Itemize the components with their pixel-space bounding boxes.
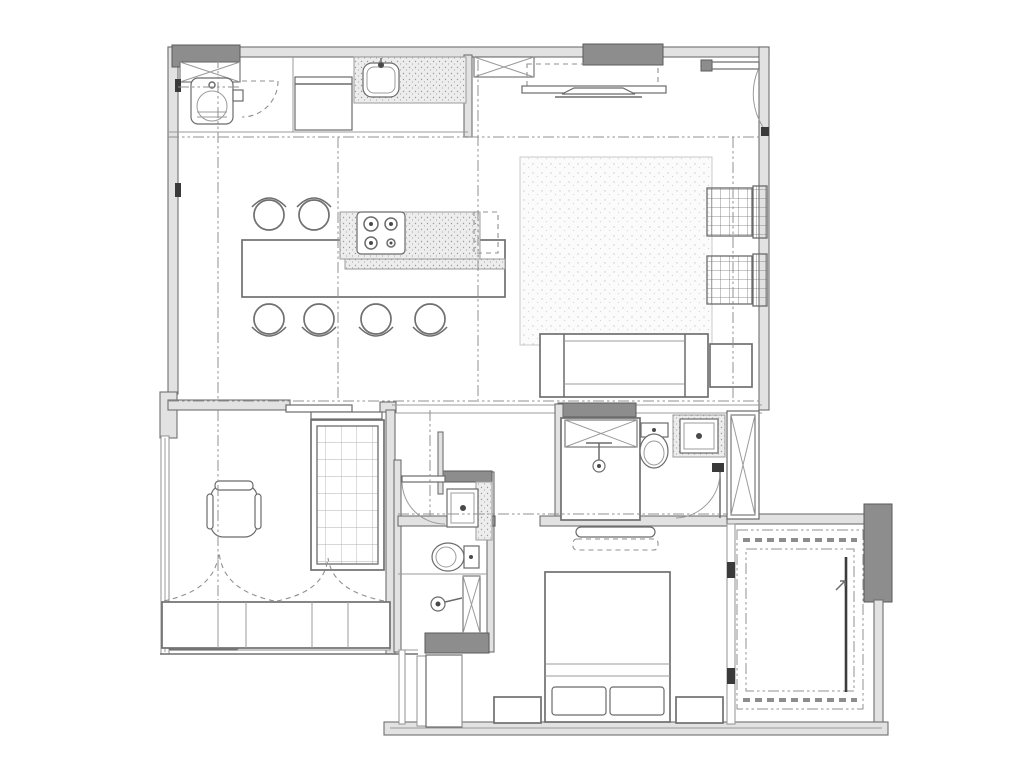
entry-door-hinge — [701, 60, 712, 71]
column-band-hall — [558, 403, 636, 417]
column-bedroom-wardrobe — [425, 633, 489, 653]
sliding-door-room2-leaf-2 — [311, 412, 382, 419]
wardrobe-swing-1 — [164, 552, 219, 601]
chair-5 — [361, 304, 391, 334]
kitchen-sink — [363, 63, 399, 97]
column-balcony — [864, 504, 892, 602]
floor-plan-page — [0, 0, 1024, 784]
floor-cushion-1 — [707, 188, 752, 236]
sofa — [540, 334, 708, 397]
wall-mark-2 — [175, 183, 181, 197]
wall-mark-1 — [175, 79, 181, 92]
bath-door-arc — [676, 473, 720, 518]
toilet-button — [652, 428, 656, 432]
pillow-1 — [552, 687, 606, 715]
floor-cushion-2 — [707, 256, 752, 304]
closet-door-arc — [242, 81, 278, 117]
burner-2-dot — [389, 222, 393, 226]
nightstand-right — [676, 697, 723, 723]
bedroom-tv-console — [573, 539, 658, 550]
entry-door-jamb — [761, 127, 769, 136]
island-band — [345, 259, 505, 269]
burner-1-dot — [369, 222, 373, 226]
pillow-2 — [610, 687, 664, 715]
wall-left-jog — [160, 392, 177, 438]
wardrobe-swing-2 — [219, 552, 274, 601]
bedroom-tv — [576, 527, 655, 537]
bath2-shower-dot — [436, 602, 441, 607]
tv-screen — [562, 88, 635, 94]
fridge — [295, 77, 352, 130]
balcony-border-inner — [746, 549, 854, 691]
wall-left — [168, 47, 178, 394]
chair-1 — [254, 200, 284, 230]
bath-door-jamb — [712, 463, 724, 472]
column-top-mid — [583, 44, 663, 65]
chair-2 — [299, 200, 329, 230]
nightstand-left — [494, 697, 541, 723]
desk-chair-arm-left — [207, 494, 213, 529]
desk-chair-back — [215, 481, 253, 490]
bath2-shower-arm — [445, 598, 462, 602]
chair-4 — [304, 304, 334, 334]
wall-bedroom-left-outer — [399, 650, 405, 724]
balcony-glass-arrow — [836, 581, 845, 590]
chair-3 — [254, 304, 284, 334]
tv-cabinet-dashed — [527, 64, 658, 88]
sliding-door-room2-leaf-1 — [286, 405, 352, 412]
sliding-door-jamb-1 — [727, 562, 735, 578]
burner-4-dot — [390, 242, 393, 245]
balcony-border-outer — [737, 530, 863, 709]
single-bed-grid — [317, 426, 378, 564]
column-bath2-top — [440, 471, 492, 482]
side-table — [710, 344, 752, 387]
burner-3-dot — [369, 241, 373, 245]
window-bedroom-left — [417, 656, 426, 726]
floor-plan — [0, 0, 1024, 784]
floor-cushion-1-back — [753, 186, 767, 238]
wall-hall-partition — [438, 432, 443, 494]
wall-bath2-left — [394, 460, 401, 652]
desk-chair-arm-right — [255, 494, 261, 529]
wall-balcony-right — [874, 600, 883, 734]
shower-head-dot — [597, 464, 601, 468]
wardrobe-room2 — [162, 602, 390, 648]
floor-cushion-2-back — [753, 254, 767, 306]
washer-valve-box — [233, 90, 243, 101]
living-rug — [520, 157, 712, 345]
bath2-toilet-button — [469, 555, 473, 559]
bath2-faucet — [460, 505, 466, 511]
sliding-door-jamb-2 — [727, 668, 735, 684]
entry-door-leaf — [712, 62, 759, 69]
bath2-door-leaf — [402, 476, 445, 482]
cooktop — [357, 212, 405, 254]
sliding-door-balcony — [727, 524, 735, 724]
chair-6 — [415, 304, 445, 334]
bath-faucet — [696, 433, 702, 439]
bedroom-closet — [426, 655, 462, 727]
